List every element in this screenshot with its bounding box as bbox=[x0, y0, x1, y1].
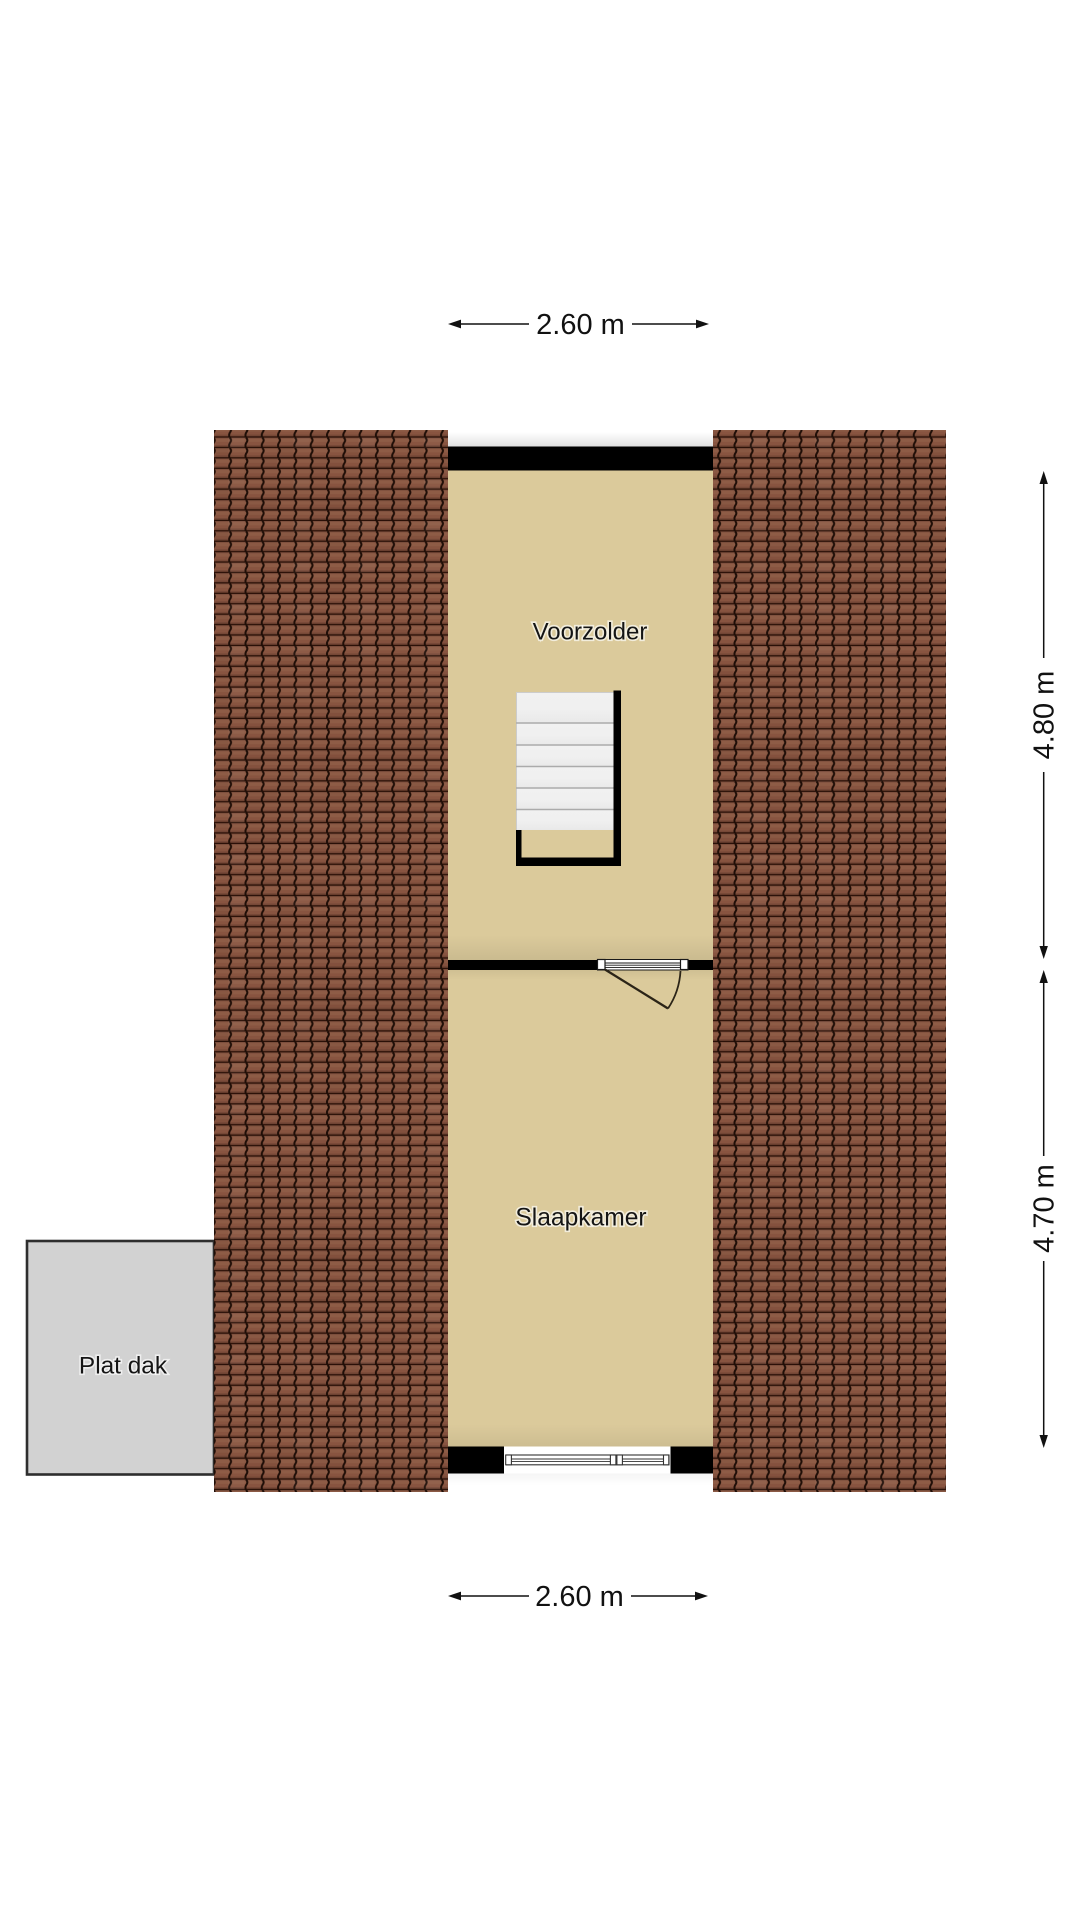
svg-text:Slaapkamer: Slaapkamer bbox=[515, 1205, 646, 1232]
svg-text:2.60 m: 2.60 m bbox=[535, 1581, 624, 1613]
svg-text:Voorzolder: Voorzolder bbox=[533, 619, 648, 646]
svg-text:2.60 m: 2.60 m bbox=[536, 309, 625, 341]
svg-text:4.70 m: 4.70 m bbox=[1029, 1164, 1061, 1253]
svg-text:4.80 m: 4.80 m bbox=[1029, 671, 1061, 760]
svg-text:Plat dak: Plat dak bbox=[79, 1353, 168, 1380]
